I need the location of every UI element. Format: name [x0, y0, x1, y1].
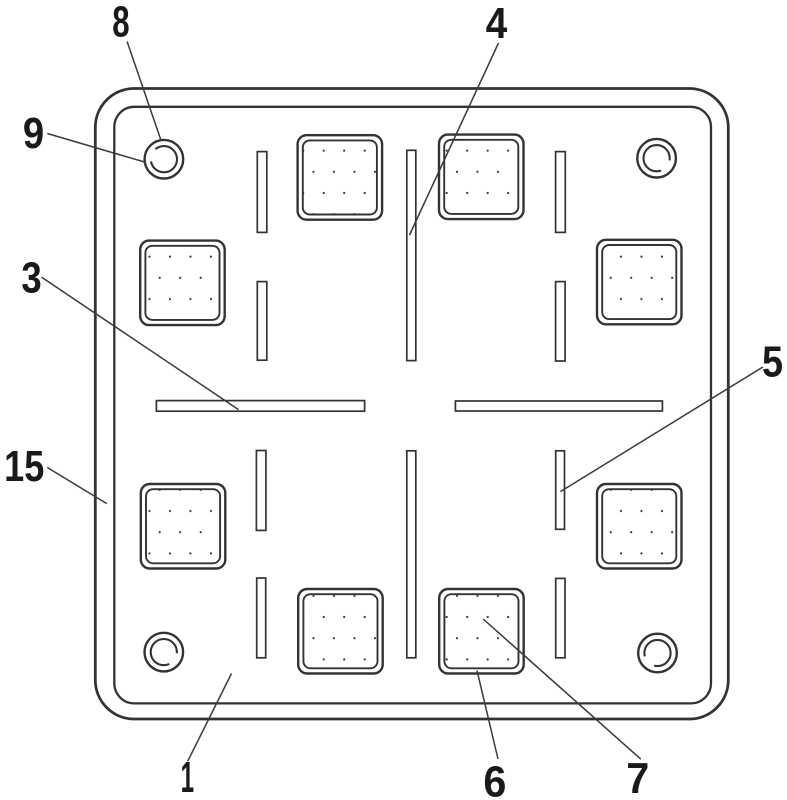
svg-text:15: 15: [4, 442, 44, 491]
svg-text:1: 1: [181, 752, 194, 800]
svg-text:7: 7: [626, 754, 649, 800]
svg-text:4: 4: [486, 0, 508, 48]
svg-text:8: 8: [112, 0, 129, 47]
svg-text:5: 5: [762, 337, 783, 386]
svg-text:3: 3: [21, 252, 41, 302]
svg-text:9: 9: [23, 109, 44, 158]
svg-text:6: 6: [483, 757, 506, 800]
